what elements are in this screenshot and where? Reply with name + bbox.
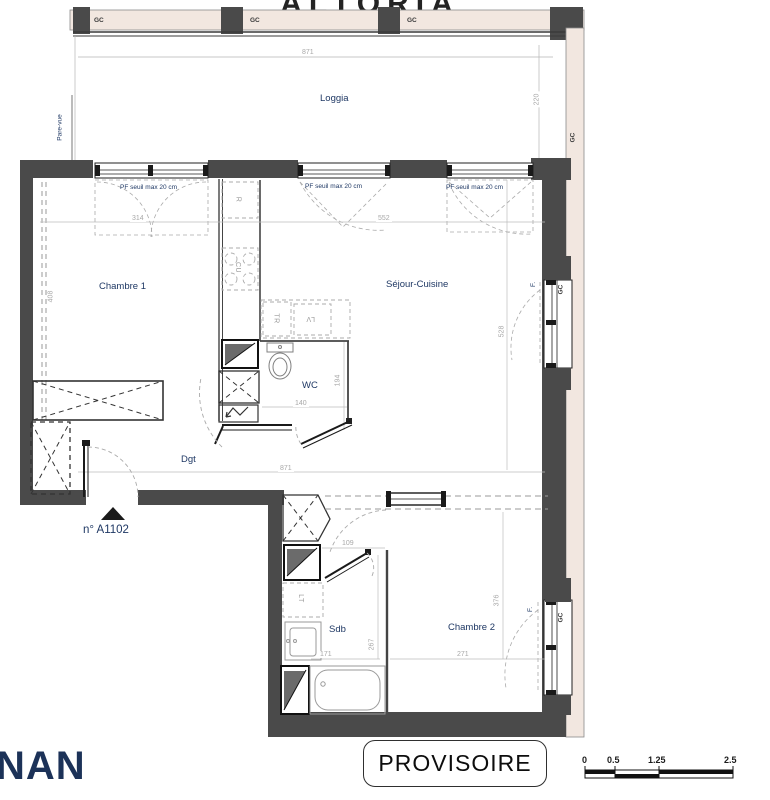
entry-door: [82, 440, 138, 497]
scale-tick-0: 0: [582, 755, 587, 765]
window-chambre1: [95, 163, 208, 237]
room-label-dgt: Dgt: [181, 454, 196, 465]
window-note-2: PF seuil max 20 cm: [305, 183, 362, 190]
window-note-3: PF seuil max 20 cm: [446, 184, 503, 191]
partition-walls: [219, 179, 387, 712]
toilet: [267, 343, 293, 379]
kitchen-units: [222, 182, 350, 338]
entry-marker-triangle: [101, 507, 125, 520]
window-sejour-right: [447, 163, 533, 234]
scale-tick-125: 1.25: [648, 755, 666, 765]
bathtub: [310, 666, 385, 714]
dim-chambre1-depth: 408: [47, 289, 54, 305]
dim-chambre2-width: 271: [455, 651, 471, 658]
window-note-1: PF seuil max 20 cm: [120, 184, 177, 191]
company-logo-cropped: NAN: [0, 744, 86, 789]
appliance-dishwasher-label: LV: [306, 315, 315, 322]
room-label-chambre2: Chambre 2: [448, 622, 495, 633]
window-sejour-east: [511, 256, 572, 390]
unit-number-label: n° A1102: [83, 524, 129, 536]
chambre2-sliding-door: [325, 491, 548, 509]
washbasin: [285, 622, 321, 660]
dim-sejour-depth: 528: [498, 324, 505, 340]
walls: [20, 158, 571, 737]
floorplan-drawing: [0, 0, 770, 800]
appliance-tr-label: TR: [273, 313, 280, 323]
provisoire-stamp: PROVISOIRE: [363, 740, 547, 787]
dim-chambre2-depth: 376: [493, 593, 500, 609]
scale-bar: [585, 766, 733, 778]
f-label-sejour: F.: [530, 282, 537, 287]
dim-sdb-depth: 267: [368, 637, 375, 653]
window-chambre2-east: [505, 578, 572, 715]
dim-sdb-door: 109: [340, 540, 356, 547]
f-label-chambre2: F.: [527, 607, 534, 612]
dim-wc-width: 140: [293, 400, 309, 407]
scale-tick-05: 0.5: [607, 755, 620, 765]
appliance-washer-label: LT: [297, 594, 304, 603]
pare-vue-label: Pare-vue: [57, 114, 64, 140]
dim-sejour-width: 552: [376, 215, 392, 222]
dim-wc-depth: 194: [334, 373, 341, 389]
gc-label-top-3: GC: [407, 17, 417, 24]
room-label-loggia: Loggia: [320, 93, 349, 104]
gc-label-right-loggia: GC: [569, 133, 576, 143]
floorplan-page: ALTORIA: [0, 0, 770, 800]
gc-label-top-1: GC: [94, 17, 104, 24]
room-label-sejour: Séjour-Cuisine: [386, 279, 448, 290]
shaft-kitchen: [222, 340, 258, 368]
dim-sdb-width: 171: [318, 651, 334, 658]
provisoire-stamp-label: PROVISOIRE: [378, 750, 531, 777]
wc-door: [296, 421, 352, 448]
gc-label-top-2: GC: [250, 17, 260, 24]
room-label-wc: WC: [302, 380, 318, 391]
scale-tick-25: 2.5: [724, 755, 737, 765]
room-label-sdb: Sdb: [329, 624, 346, 635]
dim-loggia-depth: 220: [533, 92, 540, 108]
shaft-sdb-bottom: [281, 666, 309, 714]
appliance-hob-label: CU: [234, 262, 241, 273]
appliance-fridge-label: R: [234, 197, 241, 203]
dim-chambre1-width: 314: [130, 215, 146, 222]
loggia-facade-band: [70, 7, 584, 40]
radiator-unit: [219, 405, 258, 422]
dim-loggia-width: 871: [300, 49, 316, 56]
chambre1-door: [200, 378, 292, 447]
gc-label-chambre2-window: GC: [557, 613, 564, 623]
dim-corridor-width: 871: [278, 465, 294, 472]
room-label-chambre1: Chambre 1: [99, 281, 146, 292]
shaft-sdb-top: [284, 545, 320, 580]
gc-label-sejour-window: GC: [557, 285, 564, 295]
